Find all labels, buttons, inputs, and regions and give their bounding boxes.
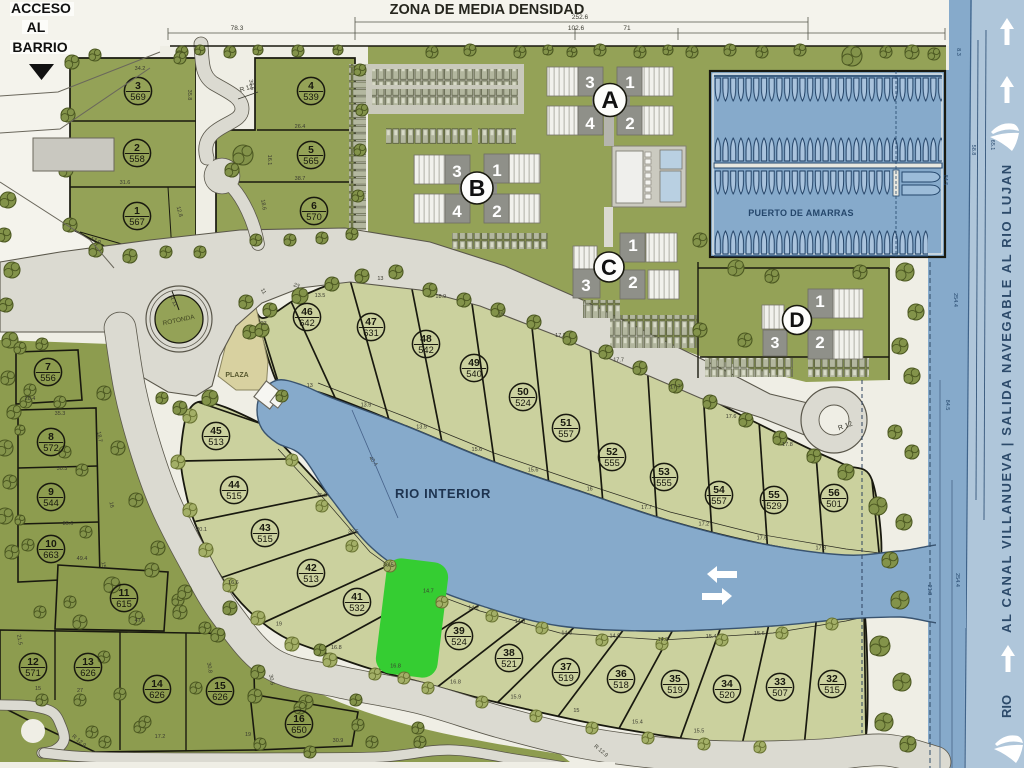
svg-text:520: 520 [719,690,735,700]
svg-text:2: 2 [815,333,824,352]
svg-text:626: 626 [80,668,96,678]
svg-text:642: 642 [299,318,315,328]
svg-text:513: 513 [208,437,224,447]
svg-text:52: 52 [606,447,618,458]
svg-text:3: 3 [581,276,590,295]
svg-text:46: 46 [301,307,313,318]
svg-text:51: 51 [560,418,572,429]
svg-text:15.9: 15.9 [510,695,521,701]
svg-text:17.8: 17.8 [815,546,826,552]
svg-text:15: 15 [573,708,579,714]
svg-text:2: 2 [492,202,501,221]
svg-text:663: 663 [43,550,59,560]
svg-text:PUERTO DE AMARRAS: PUERTO DE AMARRAS [748,208,854,218]
svg-text:4: 4 [452,202,462,221]
svg-text:5: 5 [308,145,314,156]
svg-text:13.5: 13.5 [315,293,326,299]
svg-text:519: 519 [558,673,574,683]
svg-text:542: 542 [418,345,434,355]
svg-text:12: 12 [27,657,39,668]
svg-text:539: 539 [303,92,319,102]
svg-text:4: 4 [585,114,595,133]
svg-text:ZONA DE MEDIA DENSIDAD: ZONA DE MEDIA DENSIDAD [390,2,585,18]
svg-text:19: 19 [276,622,282,628]
svg-text:557: 557 [711,496,727,506]
svg-text:7: 7 [45,362,51,373]
svg-text:65.1: 65.1 [989,140,995,151]
svg-text:501: 501 [826,499,842,509]
svg-text:14.8: 14.8 [609,634,620,640]
svg-text:3: 3 [771,335,780,352]
svg-text:38: 38 [503,648,515,659]
svg-text:54: 54 [713,485,725,496]
svg-text:30.3: 30.3 [57,466,68,472]
svg-text:13.5: 13.5 [416,424,427,430]
svg-text:2: 2 [134,143,140,154]
svg-text:36.3: 36.3 [316,493,327,499]
svg-text:17.7: 17.7 [670,385,681,391]
svg-text:PLAZA: PLAZA [225,372,248,379]
svg-text:650: 650 [291,725,307,735]
svg-text:15.6: 15.6 [754,631,765,637]
svg-text:515: 515 [226,491,242,501]
svg-text:252.6: 252.6 [572,14,589,21]
svg-text:43: 43 [259,523,271,534]
svg-text:32: 32 [826,674,838,685]
svg-text:569: 569 [130,92,146,102]
svg-text:16.8: 16.8 [390,663,401,669]
svg-text:524: 524 [451,637,467,647]
svg-text:3: 3 [135,81,141,92]
svg-text:84.5: 84.5 [944,400,950,411]
svg-text:44: 44 [228,480,240,491]
svg-text:23: 23 [261,321,267,327]
svg-text:78.3: 78.3 [231,25,244,32]
svg-text:45: 45 [210,426,222,437]
svg-text:21.8: 21.8 [926,585,932,596]
svg-text:513: 513 [303,574,319,584]
svg-text:RIO: RIO [999,695,1014,718]
svg-text:C: C [601,255,617,280]
svg-text:14.8: 14.8 [561,630,572,636]
svg-text:15: 15 [214,681,226,692]
svg-text:13.5: 13.5 [361,403,372,409]
svg-text:37: 37 [560,662,572,673]
svg-text:16: 16 [587,487,593,493]
svg-text:17.6: 17.6 [726,414,737,420]
svg-text:30.9: 30.9 [333,738,344,744]
svg-text:17.7: 17.7 [555,333,566,339]
svg-text:26.4: 26.4 [295,124,306,130]
svg-text:529: 529 [766,501,782,511]
svg-text:27: 27 [77,688,83,694]
svg-text:16: 16 [107,501,114,508]
svg-text:71: 71 [623,25,631,32]
svg-text:572: 572 [43,443,59,453]
svg-text:1: 1 [492,161,501,180]
svg-text:571: 571 [25,668,41,678]
svg-text:2: 2 [625,114,634,133]
svg-text:58.8: 58.8 [970,145,976,156]
svg-text:15.6: 15.6 [528,467,539,473]
svg-text:631: 631 [363,328,379,338]
svg-text:4: 4 [308,81,314,92]
svg-text:570: 570 [306,212,322,222]
svg-text:AL CANAL VILLANUEVA | SALIDA: AL CANAL VILLANUEVA | SALIDA NAVEGABLE A… [999,163,1014,633]
svg-text:2: 2 [628,273,637,292]
svg-text:515: 515 [824,685,840,695]
svg-text:RIO INTERIOR: RIO INTERIOR [395,486,491,501]
svg-text:39.6: 39.6 [63,521,74,527]
svg-text:3: 3 [585,73,594,92]
svg-text:28.4: 28.4 [25,396,36,402]
svg-text:49.4: 49.4 [77,556,88,562]
svg-text:18.9: 18.9 [435,294,446,300]
svg-text:615: 615 [116,599,132,609]
svg-text:20.1: 20.1 [196,527,207,533]
svg-text:55: 55 [768,490,780,501]
svg-text:10: 10 [45,539,57,550]
svg-text:17.7: 17.7 [613,357,624,363]
svg-text:9: 9 [48,487,54,498]
svg-text:555: 555 [656,478,672,488]
svg-text:254.4: 254.4 [952,293,958,307]
svg-text:34.2: 34.2 [135,66,146,72]
svg-text:565: 565 [303,156,319,166]
svg-text:8.3: 8.3 [955,48,961,56]
svg-text:A: A [601,87,618,114]
svg-text:14.8: 14.8 [658,637,669,643]
svg-text:31.6: 31.6 [120,180,131,186]
svg-text:626: 626 [212,692,228,702]
svg-text:6: 6 [311,201,317,212]
svg-text:1: 1 [628,236,637,255]
svg-text:42: 42 [305,563,317,574]
svg-text:33: 33 [774,677,786,688]
svg-text:13: 13 [82,657,94,668]
svg-text:626: 626 [149,690,165,700]
svg-text:30.5: 30.5 [348,530,359,536]
svg-text:558: 558 [129,154,145,164]
svg-text:14.7: 14.7 [423,589,434,595]
svg-text:39: 39 [453,626,465,637]
svg-text:16.1: 16.1 [266,155,272,166]
svg-text:507: 507 [772,688,788,698]
svg-text:17.8: 17.8 [782,442,793,448]
svg-text:13: 13 [307,383,313,389]
svg-text:15: 15 [35,686,41,692]
svg-text:36: 36 [615,669,627,680]
svg-text:540: 540 [466,369,482,379]
svg-text:D: D [789,309,804,332]
svg-text:47.9: 47.9 [135,618,146,624]
svg-text:17.7: 17.7 [641,505,652,511]
svg-text:38.7: 38.7 [295,176,306,182]
svg-text:532: 532 [349,603,365,613]
svg-text:35.8: 35.8 [186,90,192,101]
svg-text:11: 11 [119,588,130,599]
svg-text:84.5: 84.5 [942,175,948,186]
svg-text:15: 15 [99,561,106,568]
svg-text:557: 557 [558,429,574,439]
svg-text:41: 41 [351,592,363,603]
svg-text:555: 555 [604,458,620,468]
svg-text:567: 567 [129,217,145,227]
svg-text:1: 1 [815,292,824,311]
svg-text:102.6: 102.6 [568,25,585,32]
svg-text:15.5: 15.5 [694,728,705,734]
svg-text:17.2: 17.2 [699,521,710,527]
svg-text:254.4: 254.4 [954,573,960,587]
svg-text:AL: AL [27,19,46,35]
svg-text:524: 524 [515,398,531,408]
svg-text:34: 34 [721,679,733,690]
svg-text:48: 48 [420,334,432,345]
svg-text:13: 13 [377,276,383,282]
svg-text:16.6: 16.6 [228,580,239,586]
svg-text:B: B [469,175,486,201]
svg-text:3: 3 [452,162,461,181]
svg-text:544: 544 [43,498,59,508]
svg-text:515: 515 [257,534,273,544]
svg-text:14.2: 14.2 [468,606,479,612]
svg-text:53: 53 [658,467,670,478]
svg-text:15.6: 15.6 [472,447,483,453]
svg-text:17.2: 17.2 [155,734,166,740]
svg-text:35: 35 [669,674,681,685]
svg-text:8: 8 [48,432,54,443]
svg-text:15.4: 15.4 [632,720,643,726]
svg-text:56: 56 [828,488,840,499]
svg-text:50: 50 [517,387,529,398]
svg-text:1: 1 [134,206,140,217]
svg-text:19: 19 [245,732,251,738]
svg-text:15.4: 15.4 [706,634,717,640]
svg-text:BARRIO: BARRIO [12,39,67,55]
svg-text:16.8: 16.8 [331,645,342,651]
svg-text:16: 16 [498,312,504,318]
svg-text:14: 14 [151,679,163,690]
svg-text:519: 519 [667,685,683,695]
svg-text:ACCESO: ACCESO [11,0,71,16]
svg-text:35.3: 35.3 [55,411,66,417]
svg-text:1: 1 [625,73,634,92]
svg-text:521: 521 [501,659,517,669]
svg-text:518: 518 [613,680,629,690]
svg-text:556: 556 [40,373,56,383]
svg-text:47: 47 [365,317,377,328]
svg-text:16.8: 16.8 [450,680,461,686]
svg-text:16: 16 [293,714,305,725]
svg-text:14.8: 14.8 [515,619,526,625]
svg-text:17.6: 17.6 [757,536,768,542]
svg-text:30.5: 30.5 [383,562,394,568]
svg-text:49: 49 [468,358,480,369]
